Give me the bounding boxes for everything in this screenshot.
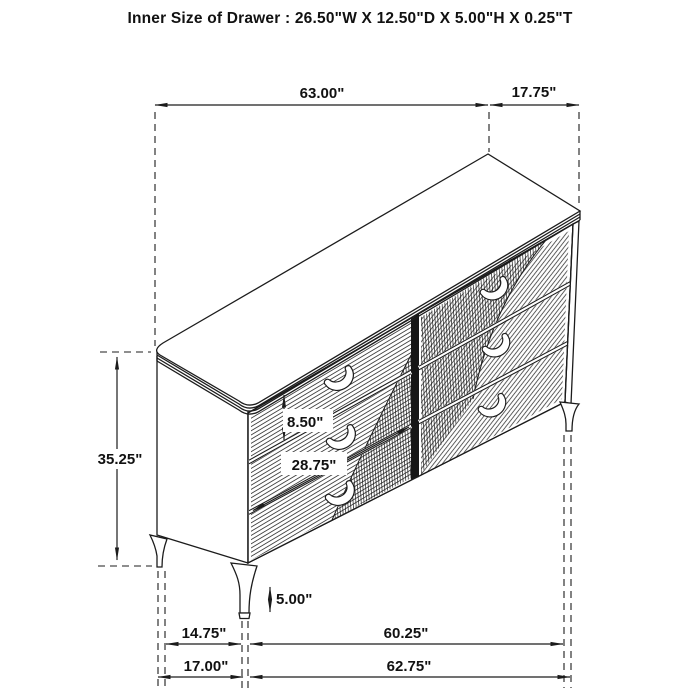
front-right-leg bbox=[560, 402, 579, 431]
dim-label-overall-width: 63.00" bbox=[300, 85, 345, 102]
center-divider bbox=[411, 314, 419, 480]
front-left-leg-foot bbox=[239, 613, 250, 619]
dim-label-top-drawer-height: 8.50" bbox=[287, 414, 323, 431]
dimension-diagram-page: Inner Size of Drawer : 26.50"W X 12.50"D… bbox=[0, 0, 700, 700]
front-left-leg bbox=[231, 563, 257, 613]
dresser-diagram: 63.00" 17.75" 35.25" 8.50" 28.75" 5.00" … bbox=[0, 0, 700, 700]
rear-left-leg bbox=[150, 535, 167, 567]
dim-label-overall-depth: 17.75" bbox=[512, 84, 557, 101]
dim-label-drawer-front-width: 28.75" bbox=[292, 457, 337, 474]
dim-label-base-width: 62.75" bbox=[387, 658, 432, 675]
dim-label-base-depth: 17.00" bbox=[184, 658, 229, 675]
dim-label-overall-height: 35.25" bbox=[98, 451, 143, 468]
dim-label-leg-inset-depth: 14.75" bbox=[182, 625, 227, 642]
dim-label-leg-span-width: 60.25" bbox=[384, 625, 429, 642]
dresser-drawing bbox=[150, 154, 580, 619]
page-title: Inner Size of Drawer : 26.50"W X 12.50"D… bbox=[0, 10, 700, 28]
dim-label-leg-height: 5.00" bbox=[276, 591, 312, 608]
